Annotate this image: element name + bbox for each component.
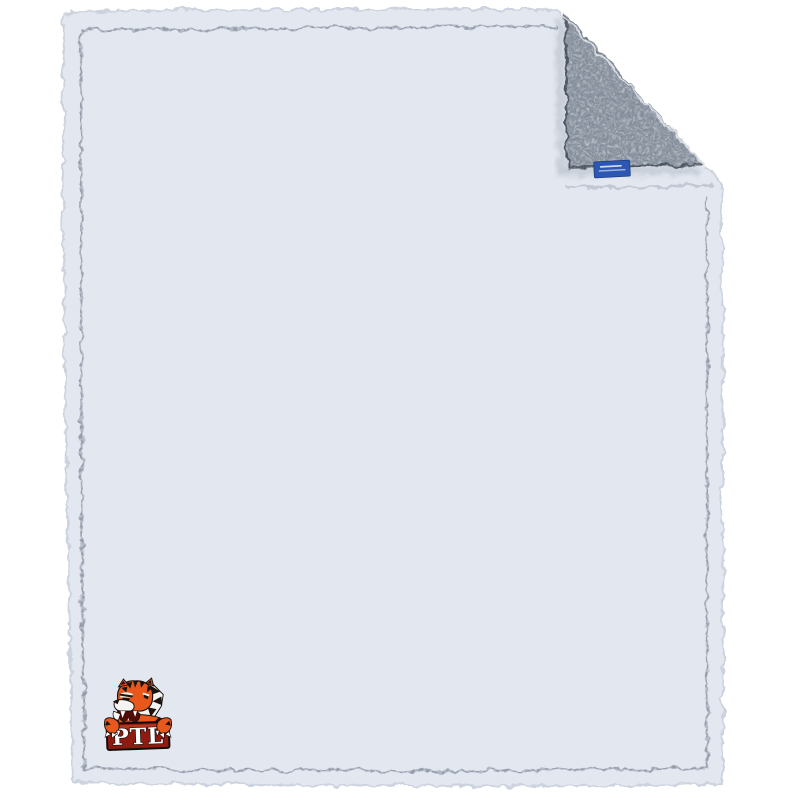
flap-hem-left xyxy=(566,20,567,166)
brand-tag xyxy=(594,160,631,178)
product-photo: PTL xyxy=(0,0,800,800)
blanket xyxy=(63,9,723,786)
blanket-photo: PTL xyxy=(0,0,800,800)
